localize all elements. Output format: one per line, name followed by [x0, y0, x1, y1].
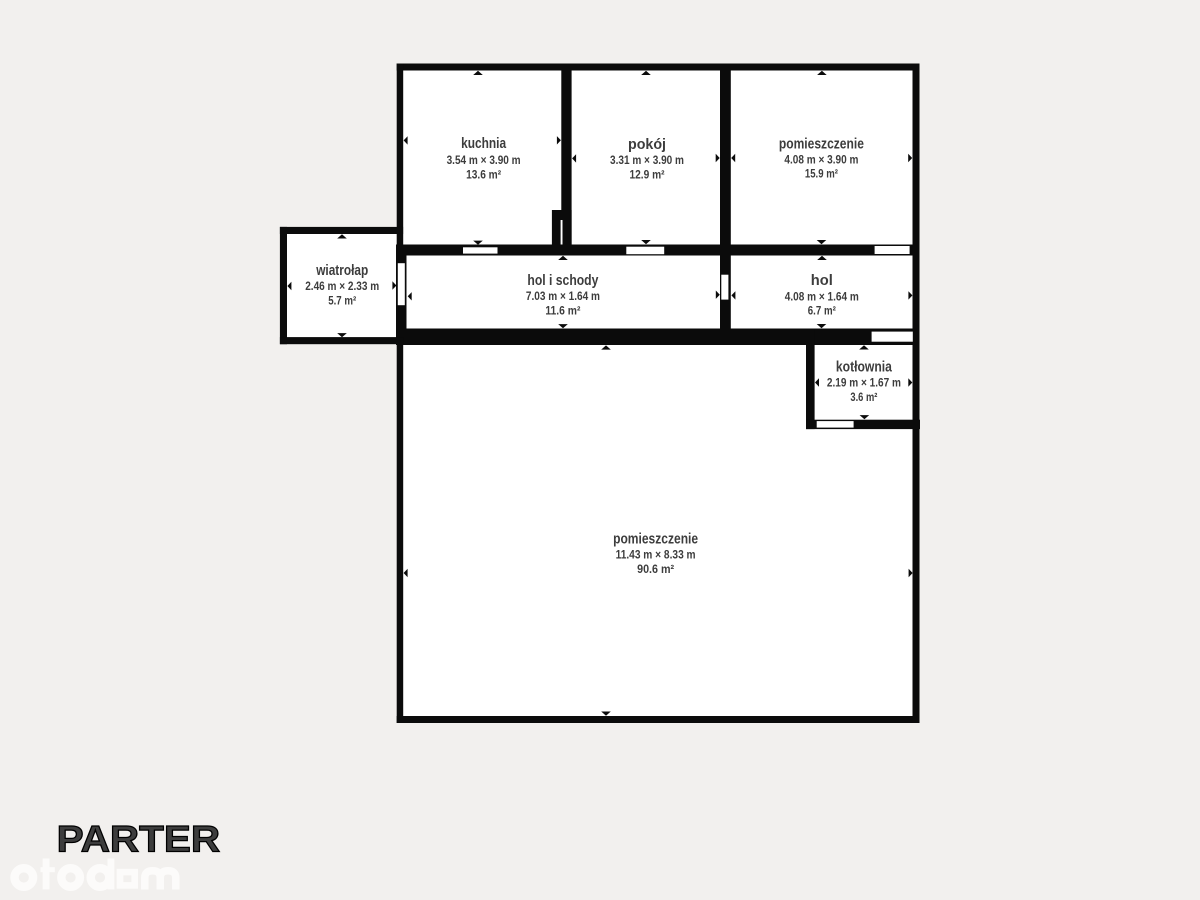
svg-text:hol: hol: [811, 272, 833, 289]
svg-text:4.08 m × 1.64 m: 4.08 m × 1.64 m: [785, 289, 859, 303]
svg-text:15.9 m²: 15.9 m²: [805, 167, 838, 181]
svg-text:13.6 m²: 13.6 m²: [466, 168, 501, 182]
svg-text:7.03 m × 1.64 m: 7.03 m × 1.64 m: [526, 289, 600, 303]
svg-text:11.6 m²: 11.6 m²: [545, 303, 580, 317]
svg-text:3.54 m × 3.90 m: 3.54 m × 3.90 m: [447, 153, 521, 167]
svg-text:pokój: pokój: [628, 136, 666, 153]
svg-text:90.6 m²: 90.6 m²: [637, 562, 674, 576]
svg-text:12.9 m²: 12.9 m²: [630, 167, 665, 181]
svg-text:wiatrołap: wiatrołap: [315, 262, 368, 279]
svg-text:hol i schody: hol i schody: [527, 272, 599, 289]
svg-text:6.7 m²: 6.7 m²: [808, 304, 836, 318]
svg-text:4.08 m × 3.90 m: 4.08 m × 3.90 m: [784, 152, 858, 166]
svg-text:2.46 m × 2.33 m: 2.46 m × 2.33 m: [305, 279, 379, 293]
svg-text:pomieszczenie: pomieszczenie: [613, 530, 698, 547]
svg-text:PARTER: PARTER: [57, 818, 221, 860]
svg-text:3.31 m × 3.90 m: 3.31 m × 3.90 m: [610, 153, 684, 167]
svg-text:kuchnia: kuchnia: [461, 135, 507, 152]
svg-text:3.6 m²: 3.6 m²: [850, 390, 877, 404]
svg-text:5.7 m²: 5.7 m²: [328, 293, 356, 307]
svg-text:11.43 m × 8.33 m: 11.43 m × 8.33 m: [616, 548, 696, 562]
svg-text:2.19 m × 1.67 m: 2.19 m × 1.67 m: [827, 376, 901, 390]
svg-text:kotłownia: kotłownia: [836, 359, 893, 376]
svg-text:pomieszczenie: pomieszczenie: [779, 135, 864, 152]
